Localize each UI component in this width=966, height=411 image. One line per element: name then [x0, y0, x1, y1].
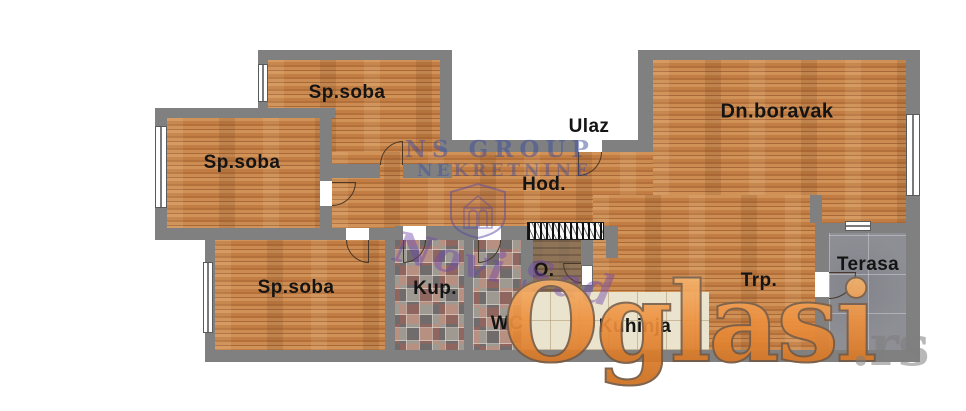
window: [906, 114, 920, 196]
door-opening: [320, 181, 332, 206]
wall: [320, 206, 332, 228]
wall: [258, 50, 452, 60]
room-label-bedroom-left: Sp.soba: [204, 152, 281, 174]
agency-watermark-subtitle: NEKRETNINE: [417, 161, 592, 181]
wall: [155, 228, 346, 240]
portal-watermark: Oglasi: [503, 268, 875, 378]
wall: [320, 118, 332, 181]
room-label-bedroom-bottom: Sp.soba: [258, 277, 335, 299]
wall: [810, 195, 822, 223]
wall: [606, 230, 618, 258]
wall: [638, 50, 653, 140]
floorplan-image: Sp.soba Sp.soba Sp.soba Ulaz Hod. Dn.bor…: [0, 0, 966, 411]
wall: [638, 50, 920, 60]
room-label-living-room: Dn.boravak: [721, 101, 834, 124]
agency-watermark-name: NS GROUP: [405, 136, 595, 163]
closet-hatch-symbol: [527, 222, 604, 240]
room-label-bedroom-top: Sp.soba: [309, 82, 386, 104]
wall: [602, 140, 653, 152]
portal-watermark-text: Oglasi: [503, 258, 875, 387]
wall: [906, 50, 920, 114]
window: [258, 64, 268, 102]
door-opening: [346, 228, 369, 240]
room-label-entrance: Ulaz: [569, 116, 610, 138]
wall: [155, 108, 335, 118]
vent-window: [845, 221, 871, 231]
portal-watermark-suffix: .rs: [851, 313, 929, 379]
window: [203, 262, 213, 333]
agency-shield-logo-icon: [447, 182, 509, 240]
window: [155, 126, 167, 208]
